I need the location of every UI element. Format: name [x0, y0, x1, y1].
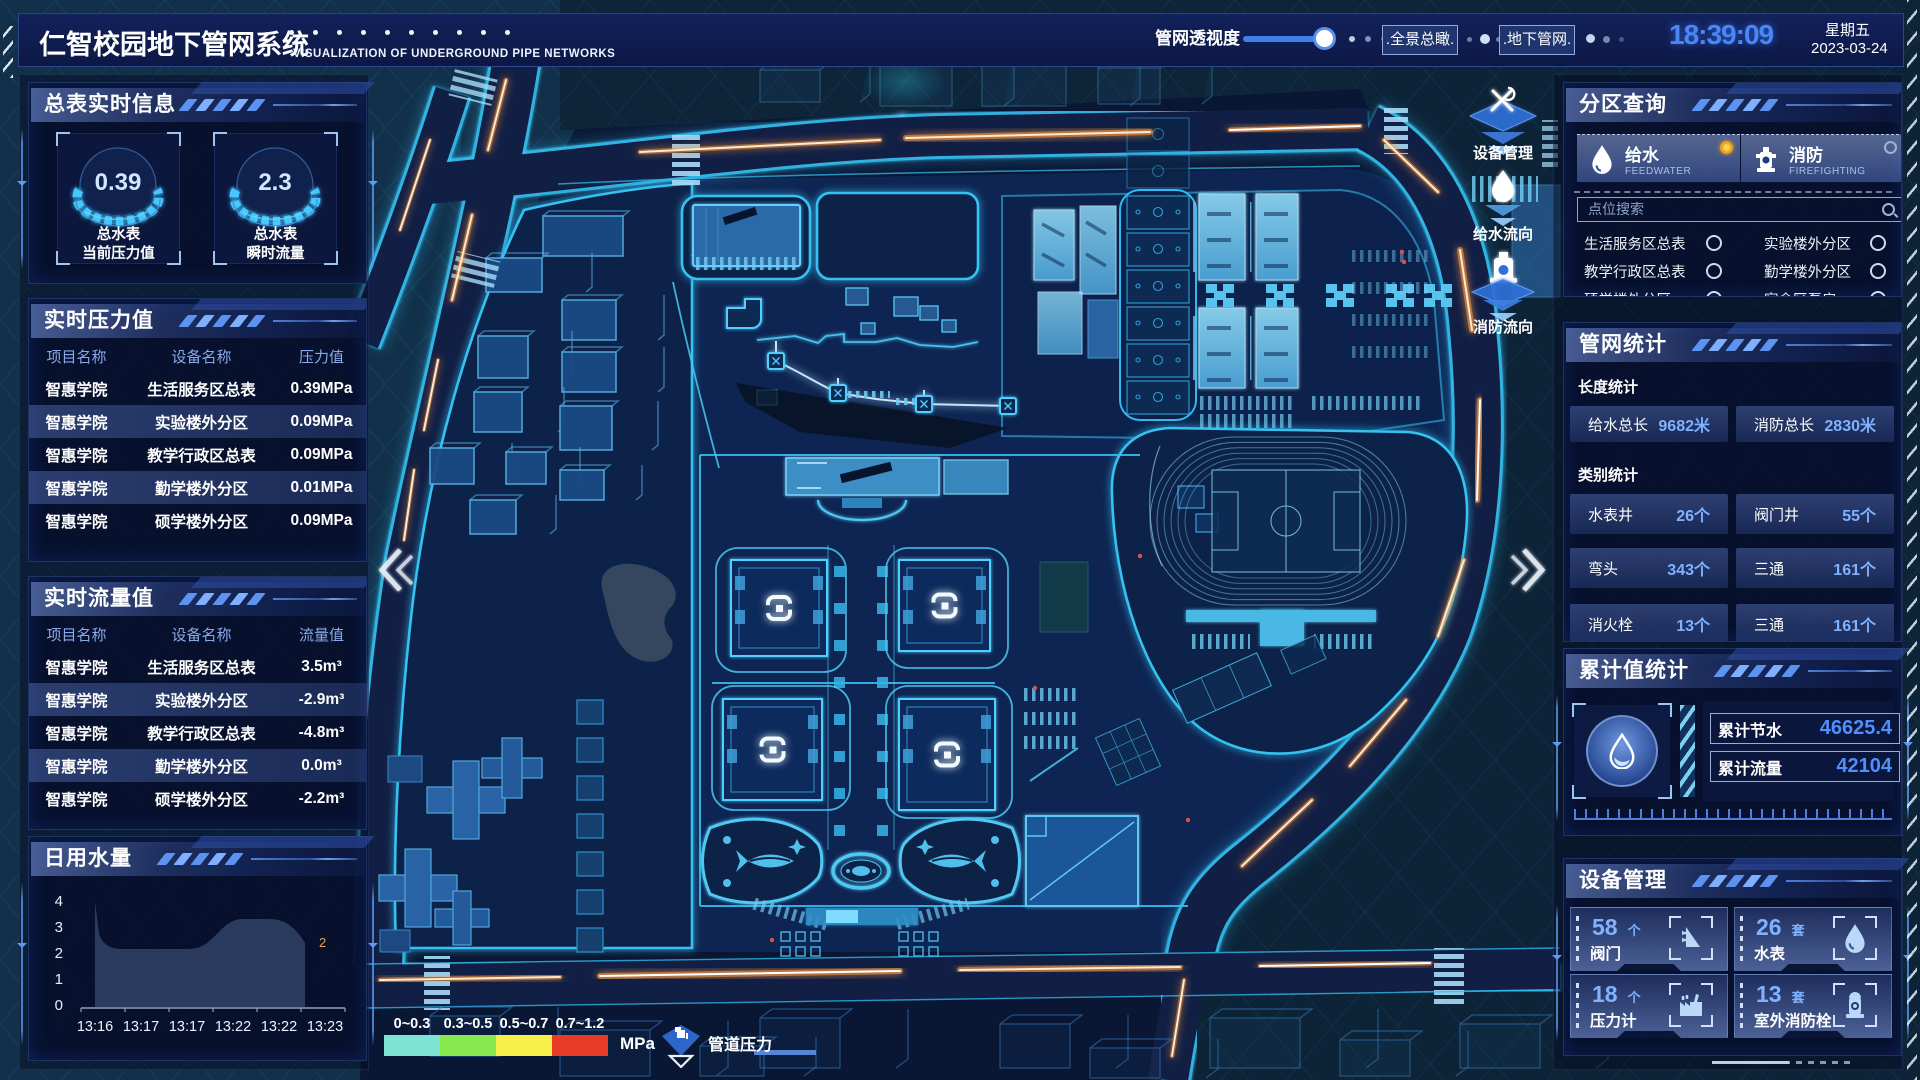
svg-text:2: 2 — [55, 945, 63, 962]
svg-text:13:16: 13:16 — [77, 1019, 113, 1035]
svg-text:设备管理: 设备管理 — [1473, 144, 1533, 162]
svg-text:1: 1 — [55, 971, 63, 988]
svg-text:13:17: 13:17 — [169, 1019, 205, 1035]
svg-text:消防流向: 消防流向 — [1473, 318, 1533, 336]
svg-text:13:17: 13:17 — [123, 1019, 159, 1035]
svg-text:0: 0 — [55, 997, 63, 1014]
svg-text:13:22: 13:22 — [215, 1019, 251, 1035]
svg-text:2: 2 — [319, 935, 326, 950]
svg-text:2.3: 2.3 — [258, 169, 291, 196]
svg-text:0.39: 0.39 — [95, 169, 142, 196]
svg-text:给水流向: 给水流向 — [1473, 225, 1533, 243]
svg-text:13:23: 13:23 — [307, 1019, 343, 1035]
svg-text:4: 4 — [55, 893, 63, 910]
svg-text:3: 3 — [55, 919, 63, 936]
svg-text:13:22: 13:22 — [261, 1019, 297, 1035]
